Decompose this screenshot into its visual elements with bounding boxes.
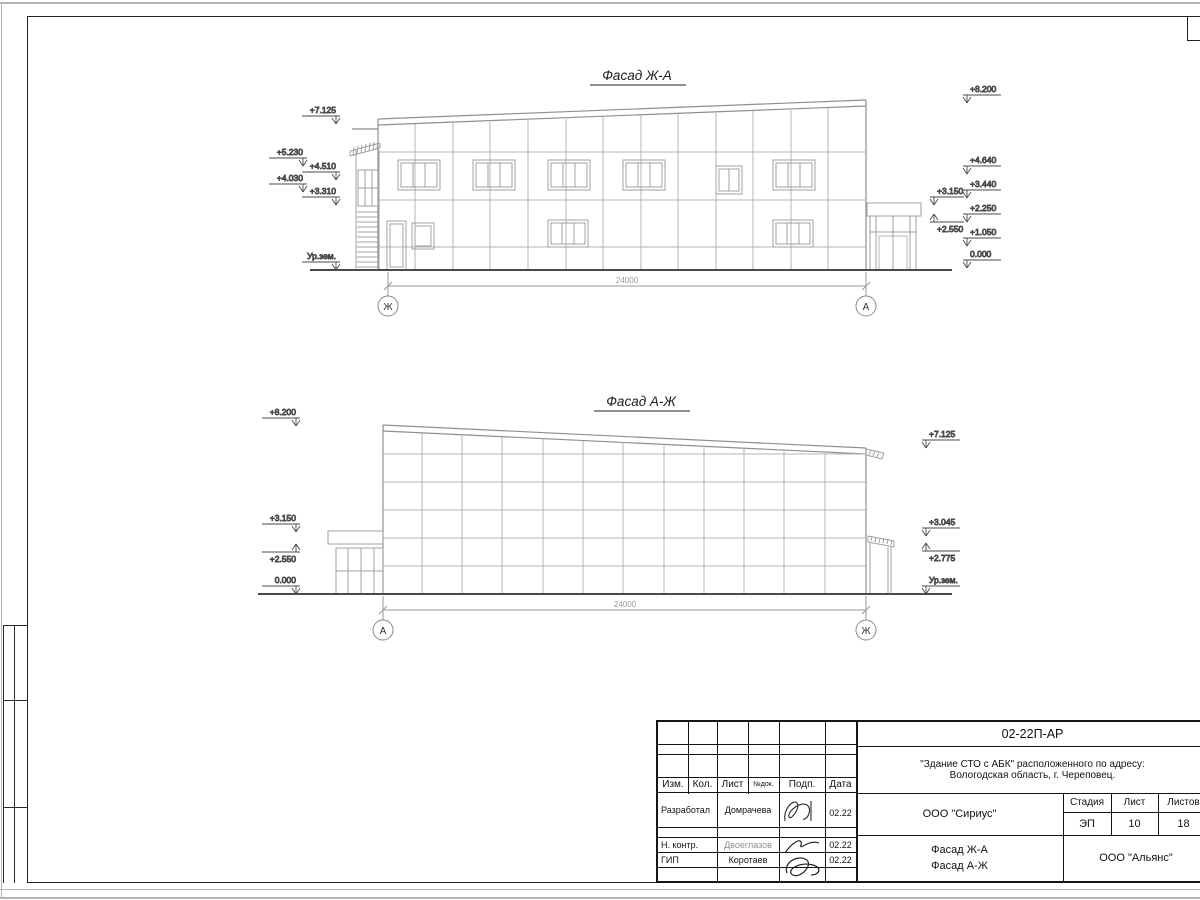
axis-label: Ж <box>383 302 393 313</box>
porch-right <box>868 536 894 594</box>
col-header-izm: Изм. <box>658 777 688 792</box>
row-date: 02.22 <box>825 837 856 852</box>
sheets-label: Листов <box>1158 793 1200 812</box>
dimension: 24000 <box>384 272 870 296</box>
svg-text:+7.125: +7.125 <box>929 429 956 439</box>
elevation-mark: +4.030 <box>269 173 307 192</box>
axis-left: А <box>373 620 393 640</box>
elevation-mark-inverted: +2.550 <box>262 544 300 564</box>
elevation-mark: +8.200 <box>262 407 300 426</box>
facade-top-drawing: Фасад Ж-А <box>269 68 1001 316</box>
window <box>548 160 590 190</box>
elevation-mark: +4.510 <box>302 161 340 180</box>
elevation-mark: +7.125 <box>302 105 340 124</box>
svg-text:+5.230: +5.230 <box>277 147 304 157</box>
svg-text:+8.200: +8.200 <box>970 84 997 94</box>
elevation-mark: +3.150 <box>262 513 300 532</box>
svg-text:+4.510: +4.510 <box>310 161 337 171</box>
row-name: Двоеглазов <box>718 837 778 852</box>
svg-text:+4.640: +4.640 <box>970 155 997 165</box>
elevation-mark: +3.045 <box>922 517 960 536</box>
window-small <box>716 166 742 194</box>
svg-text:+3.150: +3.150 <box>937 186 964 196</box>
window <box>548 220 588 247</box>
door <box>387 221 406 270</box>
sheet-content: Фасад Ж-А Фасад А-Ж <box>856 835 1063 881</box>
project-name: "Здание СТО с АБК" расположенного по адр… <box>856 746 1200 793</box>
col-header-podp: Подп. <box>779 777 825 792</box>
svg-text:0.000: 0.000 <box>970 249 992 259</box>
row-role: Разработал <box>661 800 717 820</box>
svg-text:Ур.зем.: Ур.зем. <box>929 575 958 585</box>
sheets-total: 18 <box>1158 812 1200 835</box>
content-line2: Фасад А-Ж <box>931 858 988 874</box>
svg-text:+3.310: +3.310 <box>310 186 337 196</box>
elevation-mark: +1.050 <box>963 227 1001 246</box>
elevation-mark: 0.000 <box>262 575 300 594</box>
elevation-mark: +3.310 <box>302 186 340 205</box>
sheet-label: Лист <box>1111 793 1158 812</box>
window <box>473 160 515 190</box>
row-name: Домрачева <box>718 800 778 820</box>
porch-left <box>328 531 383 594</box>
svg-text:+3.045: +3.045 <box>929 517 956 527</box>
elevation-mark: +5.230 <box>269 147 307 166</box>
facade-grid-horizontals <box>378 152 866 247</box>
signature <box>781 795 825 827</box>
svg-text:0.000: 0.000 <box>275 575 297 585</box>
row-name: Коротаев <box>718 852 778 867</box>
doc-code: 02-22П-АР <box>856 722 1200 746</box>
window <box>773 220 813 247</box>
row-role: Н. контр. <box>661 837 717 852</box>
elevation-mark-ground: Ур.зем. <box>922 575 960 594</box>
elevation-mark-ground: Ур.зем. <box>302 251 340 270</box>
stage-value: ЭП <box>1063 812 1111 835</box>
content-line1: Фасад Ж-А <box>931 842 988 858</box>
sheet-bottom-edge2 <box>0 897 1200 899</box>
project-line2: Вологодская область, г. Череповец. <box>950 770 1116 781</box>
svg-text:+4.030: +4.030 <box>277 173 304 183</box>
facades-canvas: Фасад Ж-А <box>0 0 1200 720</box>
elevation-mark: +3.150 <box>930 186 964 205</box>
window <box>398 160 440 190</box>
project-line1: "Здание СТО с АБК" расположенного по адр… <box>920 759 1145 770</box>
svg-text:+2.550: +2.550 <box>937 224 964 234</box>
col-header-list: Лист <box>717 777 748 792</box>
elevation-mark-inverted: +2.775 <box>922 543 960 563</box>
svg-text:+1.050: +1.050 <box>970 227 997 237</box>
designer-org: ООО "Сириус" <box>856 793 1063 835</box>
elevation-mark: +3.440 <box>963 179 1001 198</box>
client-org: ООО "Альянс" <box>1063 835 1200 881</box>
svg-text:+8.200: +8.200 <box>270 407 297 417</box>
dimension: 24000 <box>379 596 870 620</box>
facade-bottom-title: Фасад А-Ж <box>606 394 677 409</box>
axis-left: Ж <box>378 296 398 316</box>
margin-stamp-line <box>3 807 27 808</box>
elevation-mark: 0.000 <box>963 249 1001 268</box>
svg-text:+2.250: +2.250 <box>970 203 997 213</box>
porch-right <box>867 203 921 270</box>
curtainwall-horizontals <box>383 454 866 566</box>
window <box>623 160 665 190</box>
elevation-mark: +4.640 <box>963 155 1001 174</box>
col-header-kol: Кол. <box>688 777 717 792</box>
axis-right: А <box>856 296 876 316</box>
row-role: ГИП <box>661 852 717 867</box>
roof-overhang <box>866 449 884 459</box>
stair-tower <box>350 141 380 270</box>
svg-text:+2.775: +2.775 <box>929 553 956 563</box>
axis-label: А <box>863 302 870 313</box>
facade-grid-verticals <box>415 108 828 270</box>
elevation-mark: +8.200 <box>963 84 1001 103</box>
col-header-data: Дата <box>825 777 856 792</box>
row-date: 02.22 <box>825 804 856 822</box>
sheet-number: 10 <box>1111 812 1158 835</box>
svg-text:+7.125: +7.125 <box>310 105 337 115</box>
facade-top-title: Фасад Ж-А <box>602 68 672 83</box>
svg-text:Ур.зем.: Ур.зем. <box>307 251 336 261</box>
col-header-ndok: №док. <box>748 777 779 792</box>
row-date: 02.22 <box>825 852 856 867</box>
sheet-bottom-edge <box>0 889 1200 890</box>
title-block: Изм. Кол. Лист №док. Подп. Дата Разработ… <box>656 720 1200 883</box>
facade-bottom-drawing: Фасад А-Ж <box>258 394 960 640</box>
svg-text:+3.150: +3.150 <box>270 513 297 523</box>
signature <box>779 835 827 881</box>
svg-text:+2.550: +2.550 <box>270 554 297 564</box>
window <box>773 160 815 190</box>
stage-label: Стадия <box>1063 793 1111 812</box>
window-small <box>412 223 434 249</box>
dimension-label: 24000 <box>616 276 639 285</box>
drawing-sheet: Фасад Ж-А <box>0 0 1200 900</box>
elevation-mark-inverted: +2.550 <box>930 214 964 234</box>
axis-right: Ж <box>856 620 876 640</box>
elevation-mark: +7.125 <box>922 429 960 448</box>
axis-label: Ж <box>861 626 871 637</box>
elevation-mark: +2.250 <box>963 203 1001 222</box>
curtainwall-verticals <box>422 433 825 594</box>
axis-label: А <box>380 626 387 637</box>
dimension-label: 24000 <box>614 600 637 609</box>
stairs <box>357 212 378 267</box>
svg-text:+3.440: +3.440 <box>970 179 997 189</box>
